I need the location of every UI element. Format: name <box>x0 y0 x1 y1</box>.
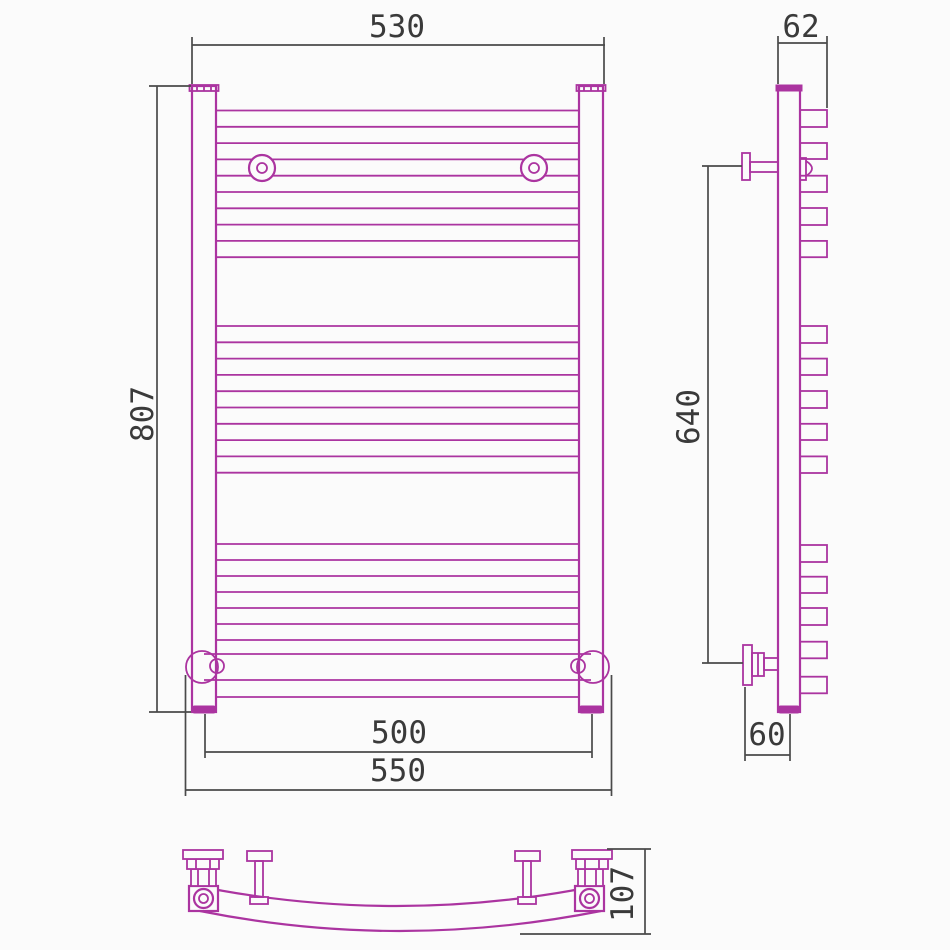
side-rung-stub <box>800 577 827 593</box>
side-rung-stub <box>800 456 827 473</box>
side-rung-stub <box>800 176 827 192</box>
dim-550-label: 550 <box>370 753 426 789</box>
front-right-bracket-icon <box>521 155 547 181</box>
side-post-cap <box>776 85 802 91</box>
side-rung-stub <box>800 391 827 408</box>
front-bottom-collector <box>186 651 609 683</box>
dim-60: 60 <box>745 687 790 761</box>
front-left-bracket-icon <box>249 155 275 181</box>
front-left-post-foot <box>192 706 216 713</box>
front-right-post <box>579 86 603 712</box>
side-rung-stub <box>800 608 827 625</box>
dim-500-label: 500 <box>371 715 427 751</box>
side-bottom-bracket-icon <box>743 645 778 685</box>
dim-530-label: 530 <box>369 9 425 45</box>
collector-right-cap-icon <box>577 651 609 683</box>
dim-807-label: 807 <box>125 386 161 442</box>
dim-807: 807 <box>125 86 191 712</box>
side-rung-stub <box>800 359 827 375</box>
side-rung-stub <box>800 424 827 440</box>
front-view: 530 807 500 550 <box>125 9 612 796</box>
technical-drawing-canvas: 530 807 500 550 <box>0 0 950 950</box>
side-post-foot <box>778 706 800 713</box>
side-rung-stub <box>800 208 827 225</box>
collector-left-cap-icon <box>186 651 218 683</box>
side-rung-stub <box>800 110 827 127</box>
front-right-post-foot <box>579 706 603 713</box>
side-rung-stub <box>800 677 827 694</box>
side-rung-stub <box>800 642 827 659</box>
front-rungs <box>216 111 579 698</box>
side-rung-stub <box>800 143 827 159</box>
dim-500: 500 <box>205 714 592 758</box>
side-rung-stub <box>800 241 827 257</box>
top-view: 107 <box>183 849 651 934</box>
side-stubs <box>800 110 827 693</box>
top-left-valve <box>183 850 223 911</box>
dim-62-label: 62 <box>782 9 819 45</box>
dim-107-label: 107 <box>605 866 641 922</box>
dim-530: 530 <box>192 9 605 84</box>
dim-62: 62 <box>778 9 827 108</box>
front-left-post <box>192 86 216 712</box>
side-post <box>778 86 800 712</box>
side-rung-stub <box>800 545 827 562</box>
side-view: 62 640 60 <box>671 9 827 761</box>
dim-640-label: 640 <box>671 389 707 445</box>
dim-60-label: 60 <box>748 717 785 753</box>
towel-rail-drawing: 530 807 500 550 <box>0 0 950 950</box>
side-rung-stub <box>800 326 827 343</box>
dim-640: 640 <box>671 166 743 663</box>
